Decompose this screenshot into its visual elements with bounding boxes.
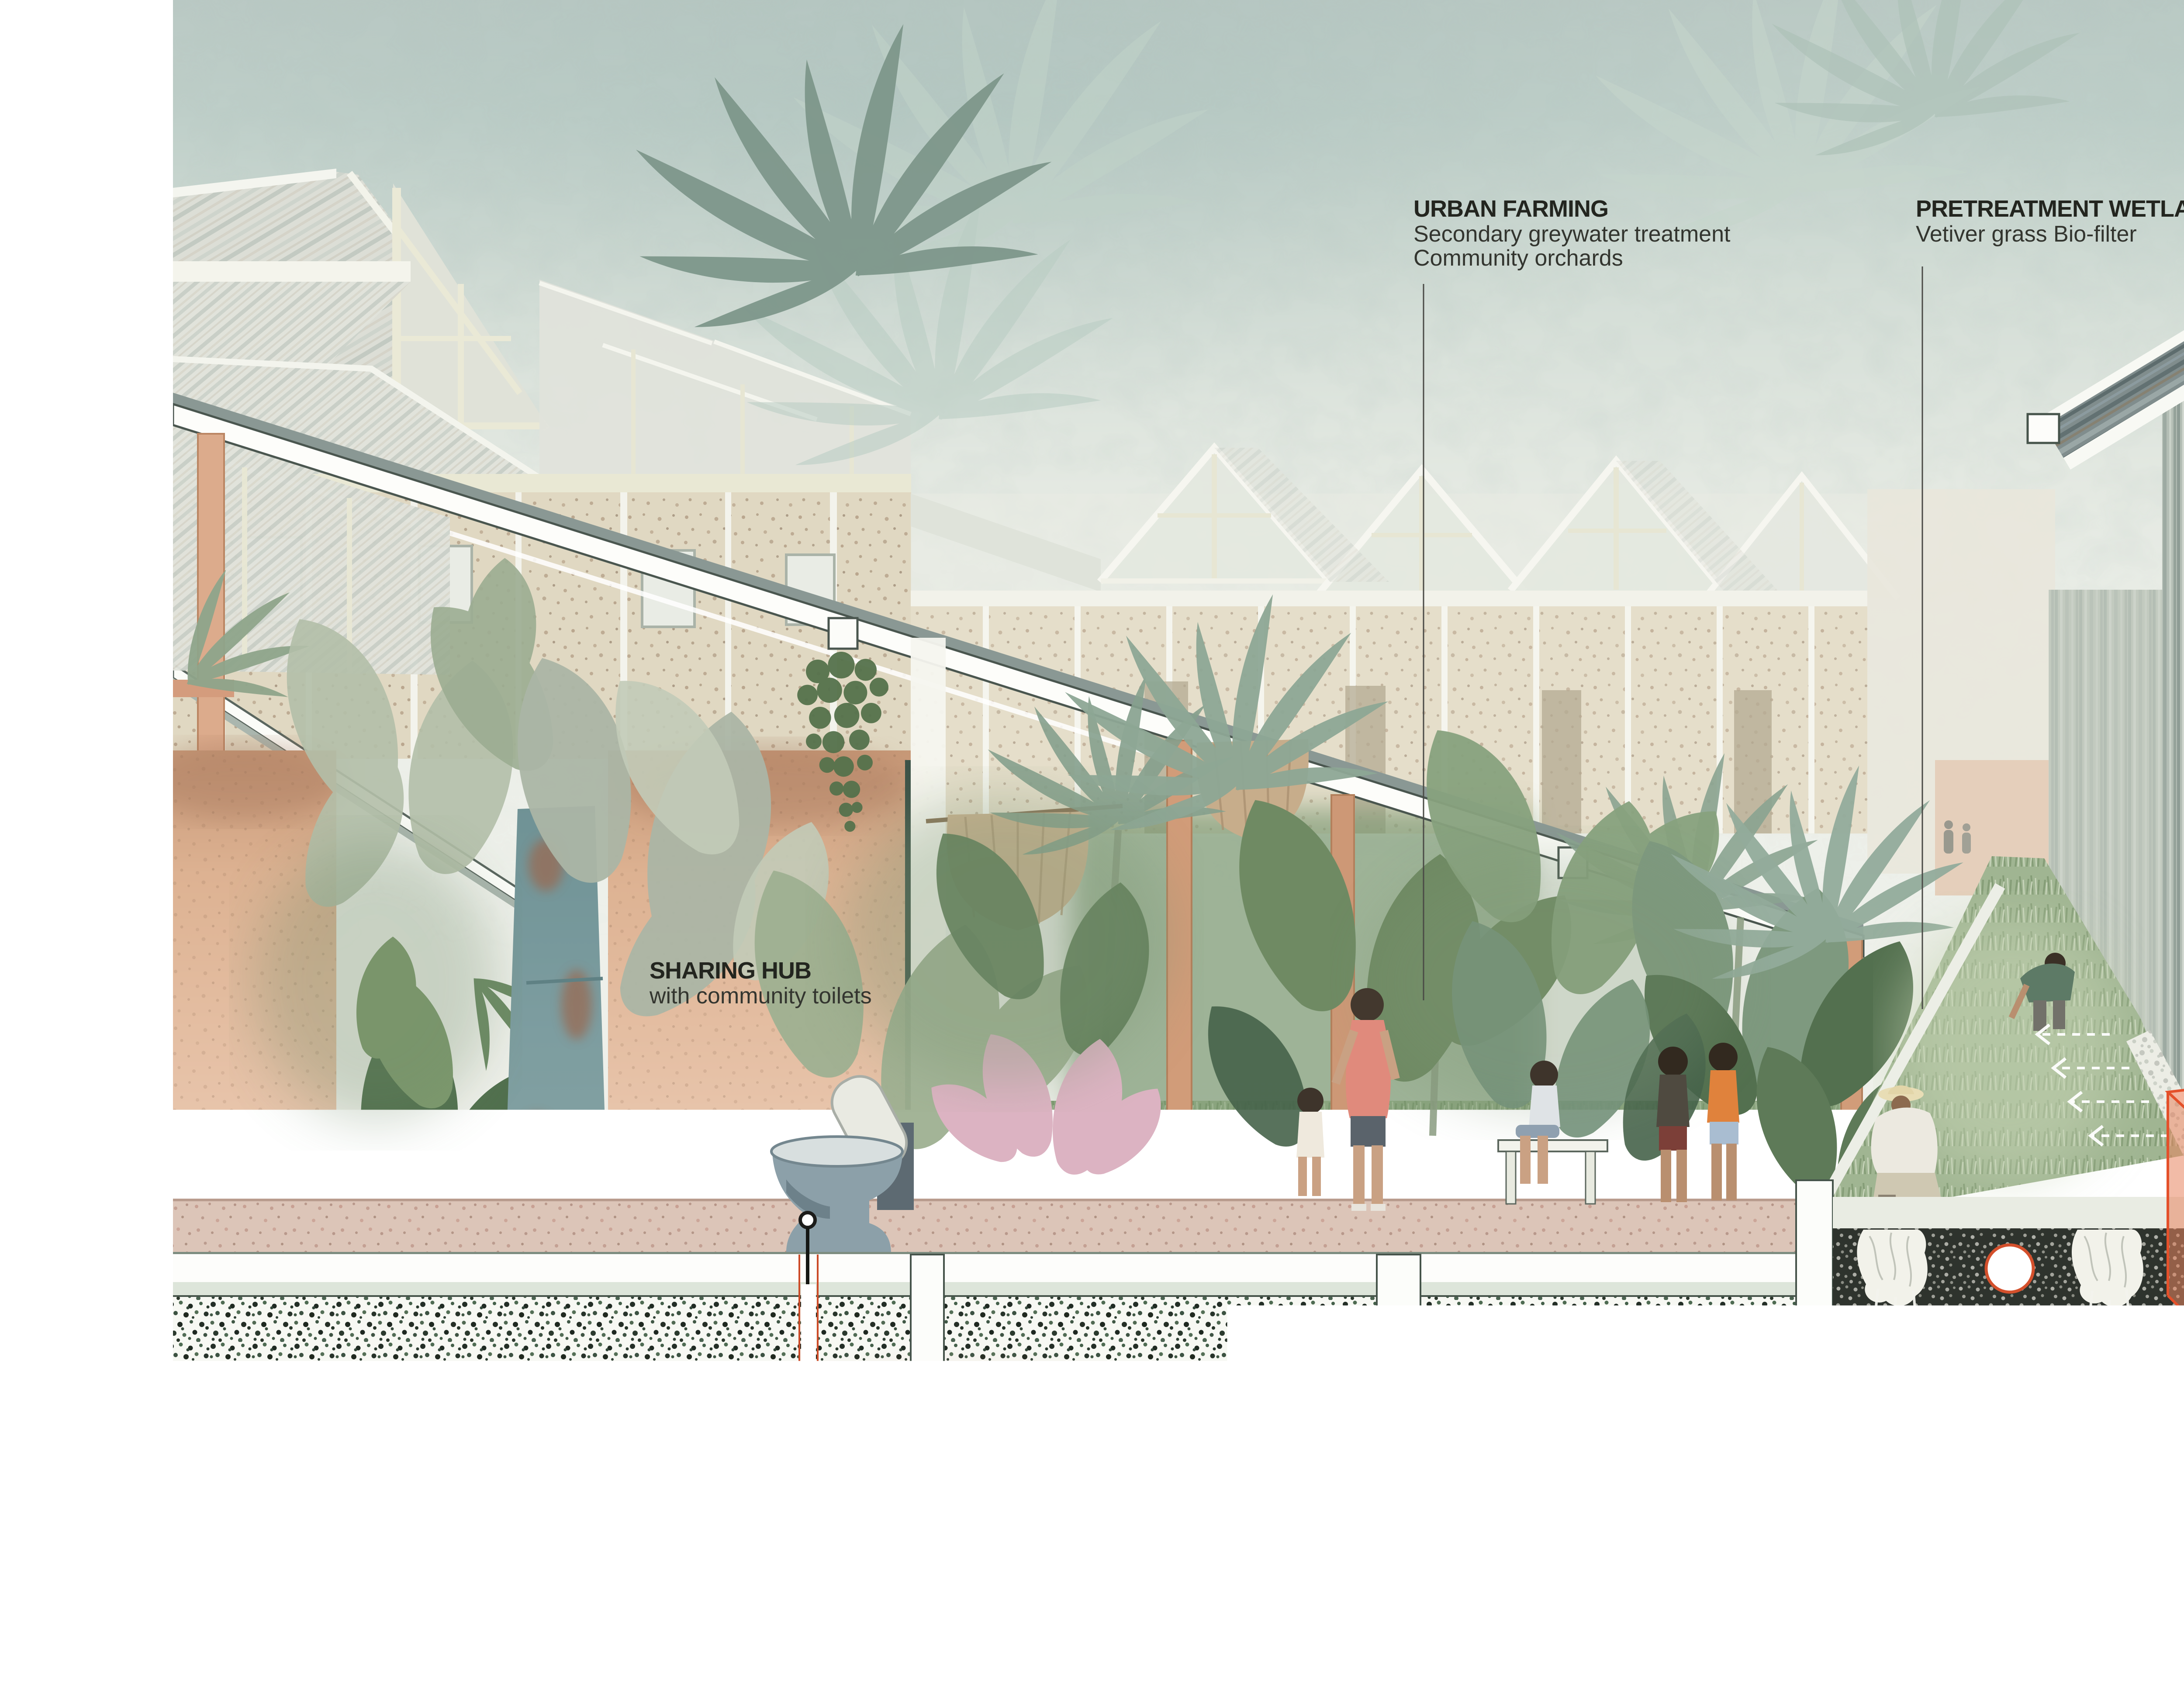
svg-text:Daily Blackwater from Sharing: Daily Blackwater from Sharing bathrooms bbox=[998, 1527, 1397, 1550]
svg-text:SHARING HUB: SHARING HUB bbox=[650, 958, 811, 984]
svg-text:Vetiver grass Bio-filter: Vetiver grass Bio-filter bbox=[1916, 221, 2137, 247]
svg-text:URBAN FARMING: URBAN FARMING bbox=[1413, 196, 1608, 222]
svg-text:with community toilets: with community toilets bbox=[649, 983, 872, 1009]
svg-text:Community orchards: Community orchards bbox=[1413, 245, 1623, 271]
svg-text:Secondary greywater treatment: Secondary greywater treatment bbox=[1413, 221, 1731, 247]
svg-text:Septic tank: Septic tank bbox=[757, 1521, 861, 1545]
svg-text:PRETREATMENT WETLAND: PRETREATMENT WETLAND bbox=[1916, 196, 2184, 222]
